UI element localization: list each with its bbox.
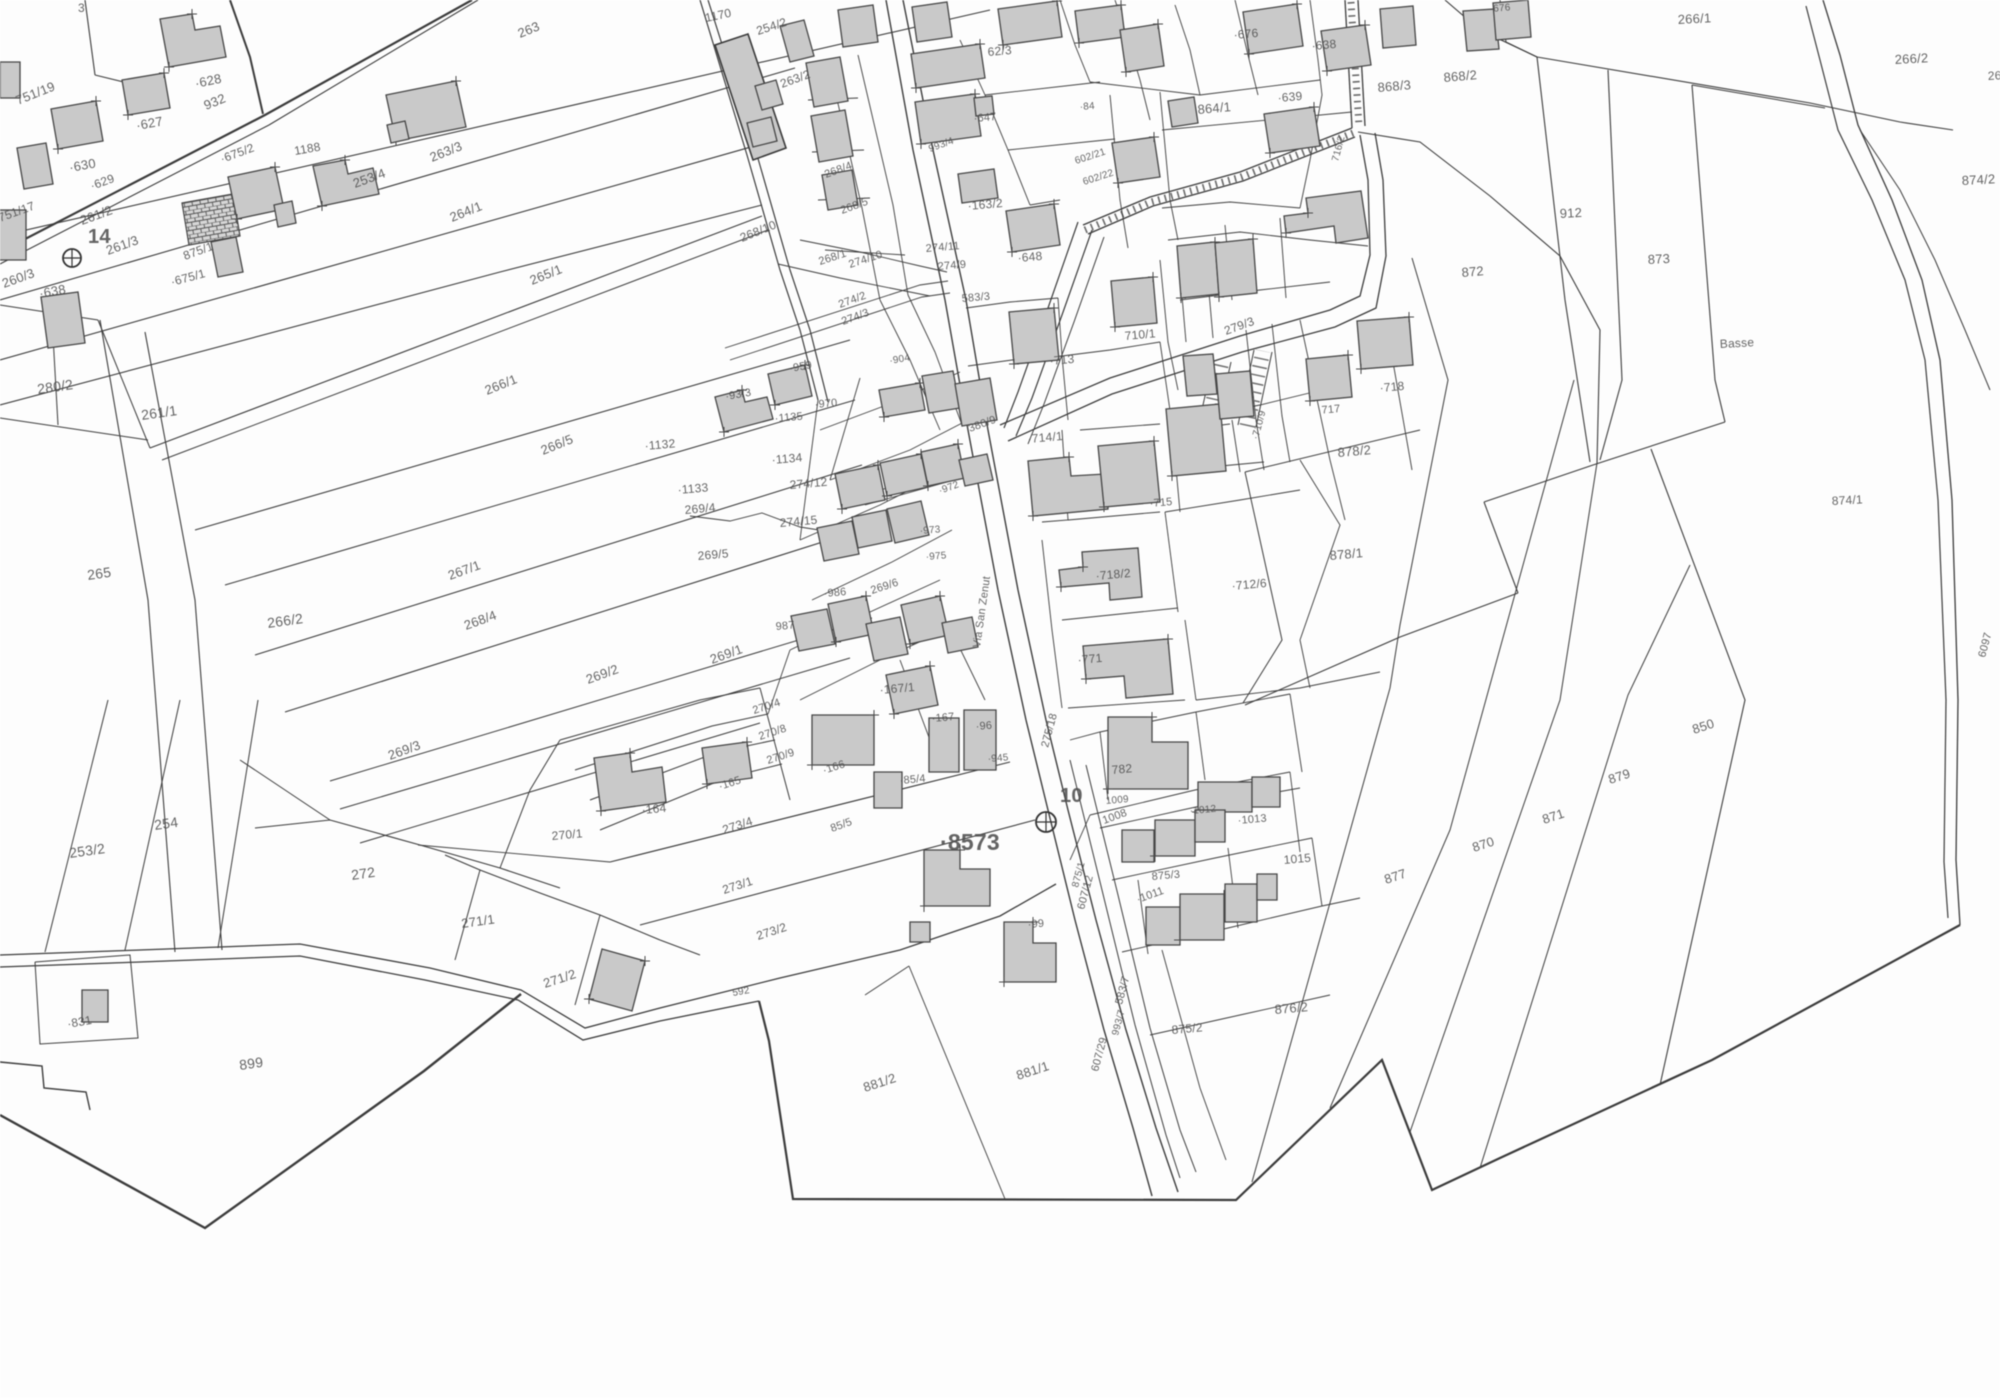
svg-text:274/9: 274/9 <box>937 259 966 273</box>
svg-text:875/3: 875/3 <box>1151 869 1180 883</box>
svg-text:·676: ·676 <box>1233 26 1259 42</box>
svg-text:899: 899 <box>238 1054 264 1073</box>
svg-text:·945: ·945 <box>987 752 1009 765</box>
svg-text:·676: ·676 <box>1489 2 1511 15</box>
svg-text:14: 14 <box>88 226 111 248</box>
svg-text:583/3: 583/3 <box>961 291 990 305</box>
svg-text:·1012: ·1012 <box>1189 804 1217 817</box>
svg-text:·986: ·986 <box>823 586 847 600</box>
svg-text:·1133: ·1133 <box>677 480 709 497</box>
svg-text:3: 3 <box>78 1 85 15</box>
svg-text:·713: ·713 <box>1049 352 1075 368</box>
svg-text:269/5: 269/5 <box>697 546 729 563</box>
svg-text:272: 272 <box>350 864 376 883</box>
svg-text:·771: ·771 <box>1077 651 1103 667</box>
svg-text:·648: ·648 <box>1017 249 1043 265</box>
svg-text:26: 26 <box>1987 68 2000 83</box>
svg-text:1009: 1009 <box>1105 794 1129 807</box>
svg-text:·1135: ·1135 <box>774 411 803 425</box>
svg-text:269/4: 269/4 <box>684 500 716 517</box>
svg-text:·970: ·970 <box>814 397 838 411</box>
svg-text:·639: ·639 <box>1277 89 1303 105</box>
svg-text:868/2: 868/2 <box>1443 67 1478 85</box>
svg-text:878/1: 878/1 <box>1329 545 1364 563</box>
svg-text:10: 10 <box>1060 785 1083 807</box>
svg-text:·96: ·96 <box>975 720 992 733</box>
svg-text:·167: ·167 <box>931 711 955 725</box>
svg-text:265: 265 <box>86 564 112 583</box>
svg-text:·99: ·99 <box>1027 918 1044 931</box>
svg-text:872: 872 <box>1461 263 1485 280</box>
svg-text:912: 912 <box>1559 205 1582 221</box>
svg-text:·1132: ·1132 <box>644 436 676 453</box>
svg-text:·717: ·717 <box>1317 403 1341 417</box>
svg-text:1015: 1015 <box>1283 851 1312 867</box>
svg-text:·975: ·975 <box>925 550 947 563</box>
svg-text:874/1: 874/1 <box>1831 492 1863 508</box>
svg-text:876/2: 876/2 <box>1274 999 1309 1017</box>
svg-text:62/3: 62/3 <box>987 43 1012 59</box>
svg-text:·715: ·715 <box>1149 496 1173 510</box>
svg-text:873: 873 <box>1647 251 1670 267</box>
svg-text:·973: ·973 <box>919 524 941 537</box>
svg-text:270/1: 270/1 <box>551 826 583 843</box>
svg-text:Basse: Basse <box>1719 335 1754 351</box>
svg-text:·164: ·164 <box>641 801 667 817</box>
svg-text:·1013: ·1013 <box>1237 812 1267 826</box>
svg-text:·638: ·638 <box>1311 37 1337 53</box>
svg-text:874/2: 874/2 <box>1961 171 1995 188</box>
svg-text:878/2: 878/2 <box>1337 442 1372 460</box>
svg-text:987: 987 <box>775 619 795 633</box>
svg-text:·718: ·718 <box>1379 379 1405 395</box>
svg-text:·1134: ·1134 <box>771 450 803 467</box>
svg-text:·647: ·647 <box>973 111 997 125</box>
svg-text:·85/4: ·85/4 <box>899 773 926 787</box>
svg-text:782: 782 <box>1111 761 1133 777</box>
svg-text:266/1: 266/1 <box>1677 10 1711 27</box>
svg-text:868/3: 868/3 <box>1377 77 1412 95</box>
svg-text:254: 254 <box>153 814 179 833</box>
svg-text:864/1: 864/1 <box>1197 99 1232 117</box>
svg-text:710/1: 710/1 <box>1124 326 1156 343</box>
svg-text:·8573: ·8573 <box>940 829 1000 855</box>
svg-text:·84: ·84 <box>1079 101 1095 113</box>
svg-text:875/2: 875/2 <box>1171 1020 1203 1037</box>
svg-text:266/2: 266/2 <box>1894 50 1928 67</box>
